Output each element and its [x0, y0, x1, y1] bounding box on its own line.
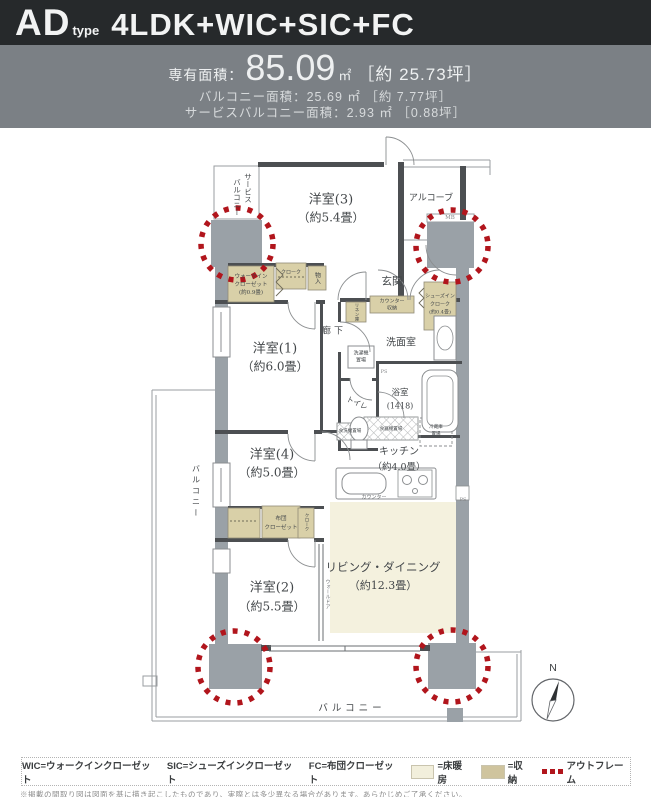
- pillar-top-right: [427, 222, 474, 268]
- service-balcony-label-col1: サービス: [243, 173, 254, 203]
- sic-label-1: シューズイン: [425, 293, 455, 300]
- legend-wic: WIC=ウォークインクローゼット: [22, 758, 156, 786]
- alcove-label: アルコーブ: [409, 191, 453, 204]
- legend-outframe-label: アウトフレーム: [566, 758, 630, 786]
- right-outer-wall: [456, 268, 469, 643]
- room-western3-name: 洋室(3): [309, 189, 353, 208]
- legend-floor-heating-label: =床暖房: [437, 758, 470, 786]
- linen-label: リネン庫: [353, 303, 359, 321]
- cloak-box: [276, 263, 306, 289]
- futon-closet-box: [262, 506, 300, 538]
- room-western4-size: （約5.0畳）: [238, 464, 305, 481]
- kitchen-name: キッチン: [379, 443, 419, 458]
- legend-floor-heating: =床暖房: [411, 758, 470, 786]
- outframe-dots-icon: [542, 769, 563, 774]
- bathroom-label-2: (1418): [387, 402, 414, 411]
- service-balcony-label-col2: バルコニー: [232, 178, 243, 216]
- floor-heating-swatch: [411, 765, 434, 779]
- pillar-bottom-left: [209, 644, 262, 689]
- cupboard-label: 食器棚置場: [380, 426, 403, 432]
- fine-print-note: ※掲載の間取り図は図面を基に描き起こしたものであり、実際とは多少異なる場合があり…: [20, 789, 640, 797]
- counter-storage-label-1: カウンター: [379, 298, 404, 305]
- compass-north-label: N: [549, 662, 557, 674]
- balcony-bottom-label: バルコニー: [318, 700, 385, 714]
- room-western2-name: 洋室(2): [250, 577, 294, 596]
- sic-label-2: クローク: [430, 301, 450, 308]
- entrance-label: 玄関: [382, 274, 403, 289]
- bathroom-label-1: 浴室: [391, 386, 408, 398]
- cloak2-label: クローク: [303, 513, 309, 531]
- fridge-label-1: 冷蔵庫: [429, 424, 443, 430]
- powder-room-label: 洗面室: [386, 334, 416, 349]
- sic-label-3: (約0.4畳): [429, 309, 451, 316]
- futon-closet-label-1: 布団: [275, 514, 286, 522]
- balcony-left-label: バルコニー: [191, 465, 202, 520]
- ps-label-2: PS: [460, 497, 467, 503]
- room-western1-size: （約6.0畳）: [241, 358, 308, 375]
- room-western3-size: （約5.4畳）: [297, 209, 364, 226]
- hanger-closet-box: [228, 508, 260, 538]
- futon-closet-label-2: クローゼット: [264, 523, 297, 531]
- legend-storage-label: =収納: [508, 758, 532, 786]
- room-western4-name: 洋室(4): [250, 444, 294, 463]
- washer-label-1: 洗濯機: [353, 350, 368, 357]
- storage-swatch: [481, 765, 504, 779]
- legend-fc: FC=布団クローゼット: [309, 758, 400, 786]
- living-dining-name: リビング・ダイニング: [326, 559, 441, 575]
- floorplan-svg: [0, 0, 651, 797]
- hallway-label: 廊下: [322, 324, 346, 337]
- kitchen-size: （約4.0畳）: [372, 459, 425, 473]
- pillar-stub: [447, 708, 463, 722]
- wall-door-label: ウォールドア: [325, 579, 332, 609]
- legend-sic: SIC=シューズインクローゼット: [167, 758, 298, 786]
- legend-storage: =収納: [481, 758, 531, 786]
- legend-box: WIC=ウォークインクローゼット SIC=シューズインクローゼット FC=布団ク…: [21, 757, 631, 786]
- living-dining-size: （約12.3畳）: [349, 577, 418, 593]
- wic-label-1: ウォークイン: [234, 272, 267, 280]
- wic-label-2: クローゼット: [234, 280, 267, 288]
- ps-label-1: PS: [381, 369, 388, 375]
- counter-label: カウンター: [361, 494, 386, 501]
- mb-label: MB: [445, 215, 455, 221]
- washer-label-2: 置場: [356, 357, 366, 364]
- floor-plan-page: AD type 4LDK+WIC+SIC+FC 専有面積： 85.09 ㎡ ［約…: [0, 0, 651, 797]
- dishwasher-label: 食洗機置場: [339, 428, 362, 434]
- left-outer-wall: [215, 222, 228, 660]
- room-western2-size: （約5.5畳）: [238, 598, 305, 615]
- wic-label-3: (約0.9畳): [239, 288, 263, 296]
- legend-outframe: アウトフレーム: [542, 758, 630, 786]
- pillar-bottom-right: [428, 643, 476, 689]
- cloak-label: クローク: [281, 269, 301, 276]
- fridge-label-2: 置場: [432, 431, 441, 437]
- pillar-top-left: [211, 220, 262, 267]
- counter-storage-label-2: 収納: [387, 305, 397, 312]
- compass-icon: [532, 679, 574, 721]
- room-western1-name: 洋室(1): [253, 338, 297, 357]
- storage-small-label: 物入: [313, 272, 322, 284]
